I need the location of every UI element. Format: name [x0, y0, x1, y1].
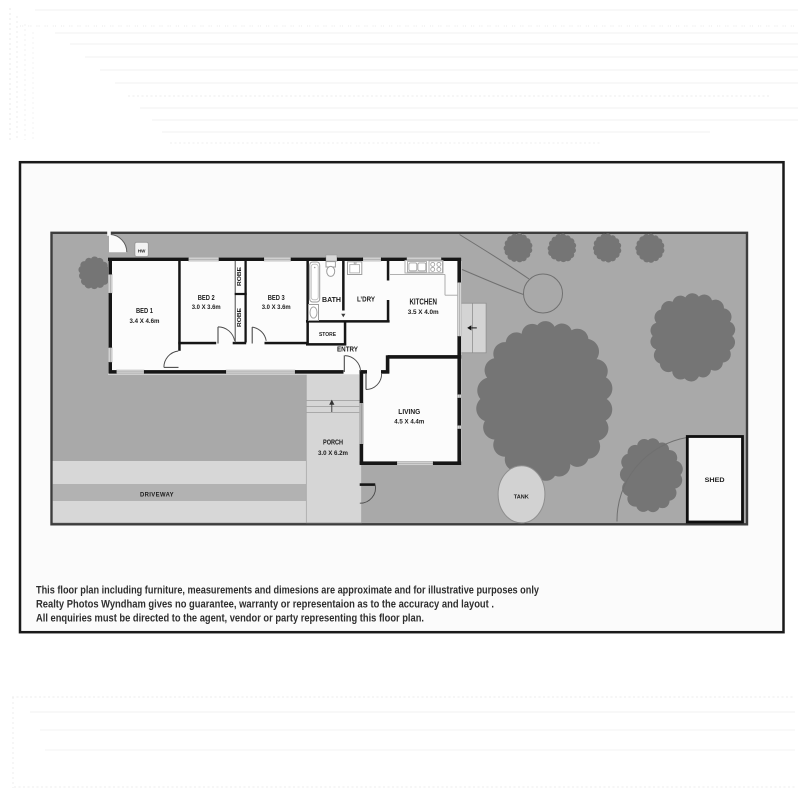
svg-text:All enquiries must be directed: All enquiries must be directed to the ag…: [36, 613, 424, 625]
svg-text:STORE: STORE: [319, 332, 336, 338]
svg-text:BED 1: BED 1: [136, 306, 154, 315]
svg-text:3.0 X 3.6m: 3.0 X 3.6m: [192, 304, 221, 311]
svg-text:3.0 X 3.6m: 3.0 X 3.6m: [262, 304, 291, 311]
svg-text:3.5 X 4.0m: 3.5 X 4.0m: [408, 309, 439, 316]
svg-text:3.0 X 6.2m: 3.0 X 6.2m: [318, 450, 348, 457]
svg-text:ROBE: ROBE: [237, 266, 243, 286]
svg-text:Realty Photos Wyndham gives no: Realty Photos Wyndham gives no guarantee…: [36, 599, 494, 611]
svg-text:This floor plan including furn: This floor plan including furniture, mea…: [36, 585, 540, 597]
svg-text:L’DRY: L’DRY: [357, 295, 375, 304]
svg-text:SHED: SHED: [705, 477, 725, 484]
svg-text:BED 2: BED 2: [198, 293, 215, 302]
svg-text:DRIVEWAY: DRIVEWAY: [140, 491, 174, 498]
svg-text:LIVING: LIVING: [398, 407, 420, 416]
svg-text:PORCH: PORCH: [323, 440, 343, 447]
svg-text:TANK: TANK: [514, 494, 530, 500]
svg-text:HW: HW: [138, 248, 146, 253]
svg-text:4.5 X 4.4m: 4.5 X 4.4m: [394, 419, 424, 426]
svg-text:KITCHEN: KITCHEN: [409, 298, 437, 307]
svg-text:BED 3: BED 3: [268, 293, 285, 302]
svg-text:ENTRY: ENTRY: [337, 344, 358, 353]
svg-text:BATH: BATH: [322, 295, 341, 304]
svg-text:ROBE: ROBE: [237, 307, 243, 327]
svg-text:3.4 X 4.6m: 3.4 X 4.6m: [130, 318, 160, 325]
